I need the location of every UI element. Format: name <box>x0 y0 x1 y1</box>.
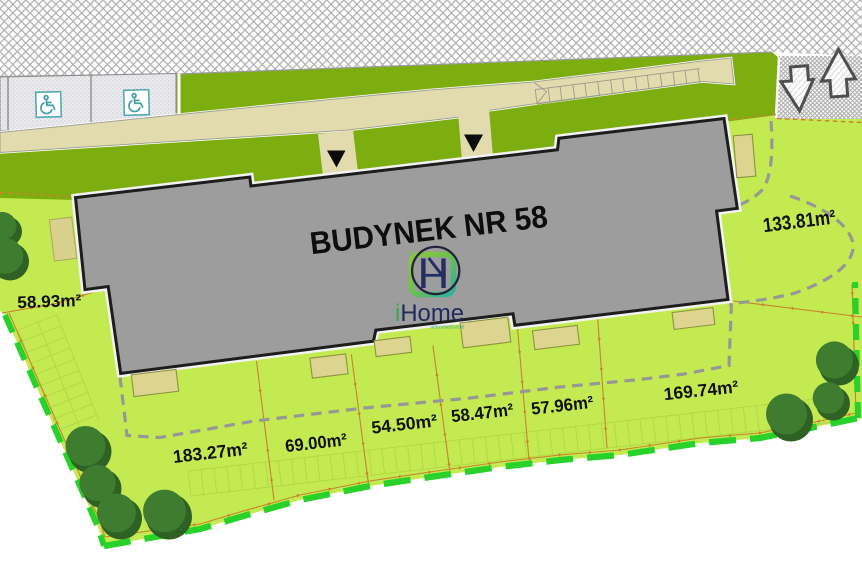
svg-text:NIERUCHOMOŚCI iHOME: NIERUCHOMOŚCI iHOME <box>431 323 465 330</box>
svg-text:iHome: iHome <box>395 300 464 327</box>
svg-text:58.93m²: 58.93m² <box>17 291 82 312</box>
